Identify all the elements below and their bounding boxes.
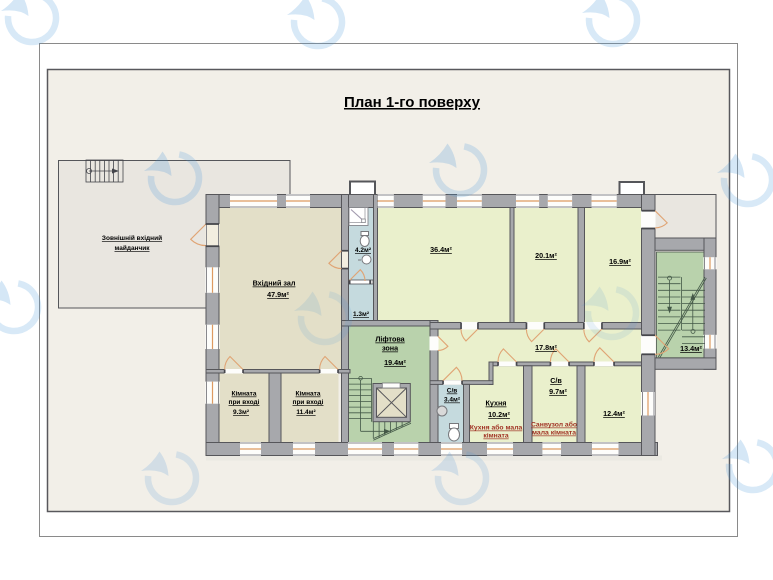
svg-text:12.4м²: 12.4м² (603, 409, 625, 418)
svg-text:майданчик: майданчик (114, 244, 150, 252)
svg-text:9.7м²: 9.7м² (549, 387, 567, 396)
svg-text:при вході: при вході (229, 398, 260, 406)
svg-text:36.4м²: 36.4м² (430, 245, 452, 254)
svg-text:Кухня: Кухня (485, 399, 506, 408)
svg-text:зона: зона (382, 344, 399, 353)
svg-text:13.4м²: 13.4м² (680, 344, 702, 353)
svg-text:9.3м²: 9.3м² (233, 409, 250, 416)
svg-text:11.4м²: 11.4м² (296, 409, 316, 416)
svg-text:при вході: при вході (293, 398, 324, 406)
svg-text:1.3м²: 1.3м² (353, 311, 370, 318)
svg-text:Кімната: Кімната (296, 390, 321, 398)
svg-text:кімната: кімната (483, 432, 509, 440)
svg-text:С/в: С/в (447, 388, 458, 395)
svg-text:С/в: С/в (550, 376, 562, 385)
svg-text:19.4м²: 19.4м² (384, 358, 406, 367)
svg-text:10.2м²: 10.2м² (488, 410, 510, 419)
svg-text:мала кімната: мала кімната (532, 429, 576, 437)
svg-text:Санвузол або: Санвузол або (531, 421, 577, 429)
svg-text:16.9м²: 16.9м² (609, 257, 631, 266)
svg-text:4.2м²: 4.2м² (355, 247, 372, 254)
svg-text:Зовнішній вхідний: Зовнішній вхідний (102, 234, 162, 242)
svg-text:47.9м²: 47.9м² (267, 290, 289, 299)
svg-text:17.8м²: 17.8м² (535, 343, 557, 352)
svg-text:Кімната: Кімната (232, 390, 257, 398)
svg-text:Вхідний зал: Вхідний зал (253, 279, 296, 288)
svg-text:20.1м²: 20.1м² (535, 251, 557, 260)
svg-text:3.4м²: 3.4м² (444, 397, 461, 404)
svg-text:Кухня або мала: Кухня або мала (470, 424, 523, 432)
svg-text:Ліфтова: Ліфтова (375, 335, 405, 344)
svg-text:План 1-го поверху: План 1-го поверху (344, 94, 481, 111)
